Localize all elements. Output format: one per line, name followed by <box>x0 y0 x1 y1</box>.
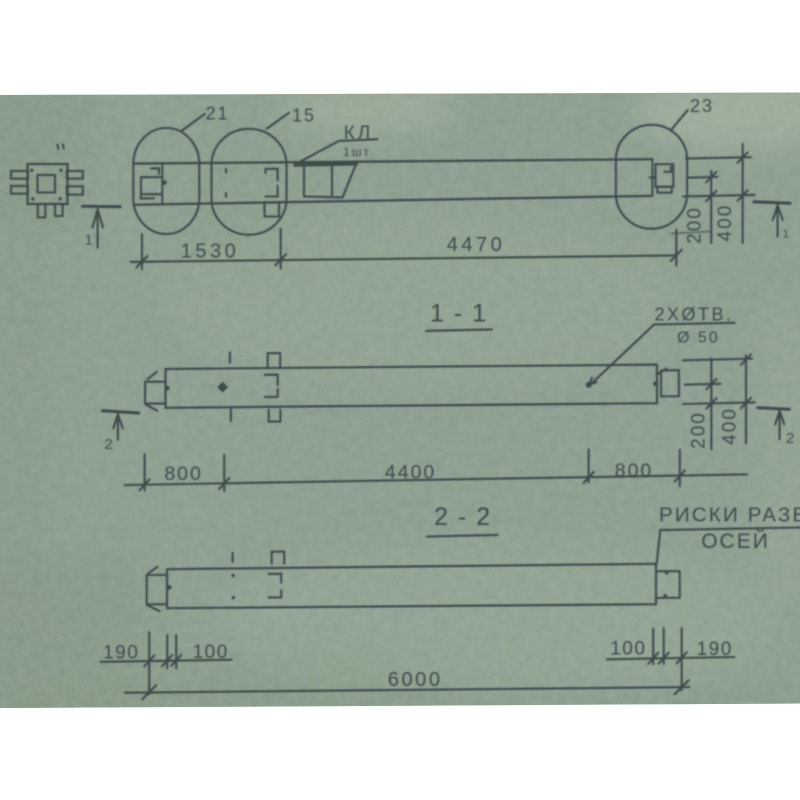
svg-text:РИСКИ РАЗБ.: РИСКИ РАЗБ. <box>659 503 800 526</box>
svg-text:190: 190 <box>103 642 139 663</box>
svg-text:Ø 50: Ø 50 <box>677 329 720 346</box>
svg-text:15: 15 <box>292 106 316 126</box>
svg-text:2: 2 <box>104 436 112 453</box>
svg-text:КЛ: КЛ <box>344 123 374 144</box>
svg-text:800: 800 <box>164 463 203 485</box>
svg-text:6000: 6000 <box>388 669 443 691</box>
svg-text:800: 800 <box>615 460 654 482</box>
svg-text:1: 1 <box>783 229 789 241</box>
svg-text:21: 21 <box>205 104 229 124</box>
svg-text:2: 2 <box>786 430 794 447</box>
svg-text:190: 190 <box>697 639 733 660</box>
svg-text:100: 100 <box>610 638 646 659</box>
svg-text:200: 200 <box>685 206 706 244</box>
svg-text:2 - 2: 2 - 2 <box>434 503 492 531</box>
svg-text:400: 400 <box>715 204 736 242</box>
svg-text:4400: 4400 <box>385 462 436 484</box>
svg-text:1: 1 <box>85 232 93 248</box>
svg-text:100: 100 <box>193 642 229 663</box>
svg-text:1шт: 1шт <box>343 145 371 159</box>
svg-text:1530: 1530 <box>181 240 240 262</box>
svg-text:1 - 1: 1 - 1 <box>430 299 488 327</box>
svg-text:200: 200 <box>689 411 710 449</box>
svg-text:23: 23 <box>690 96 714 116</box>
svg-text:2ХØТВ.: 2ХØТВ. <box>654 305 733 325</box>
svg-text:ОСЕЙ: ОСЕЙ <box>701 529 770 553</box>
svg-text:4470: 4470 <box>447 234 506 256</box>
svg-text:400: 400 <box>720 407 741 445</box>
